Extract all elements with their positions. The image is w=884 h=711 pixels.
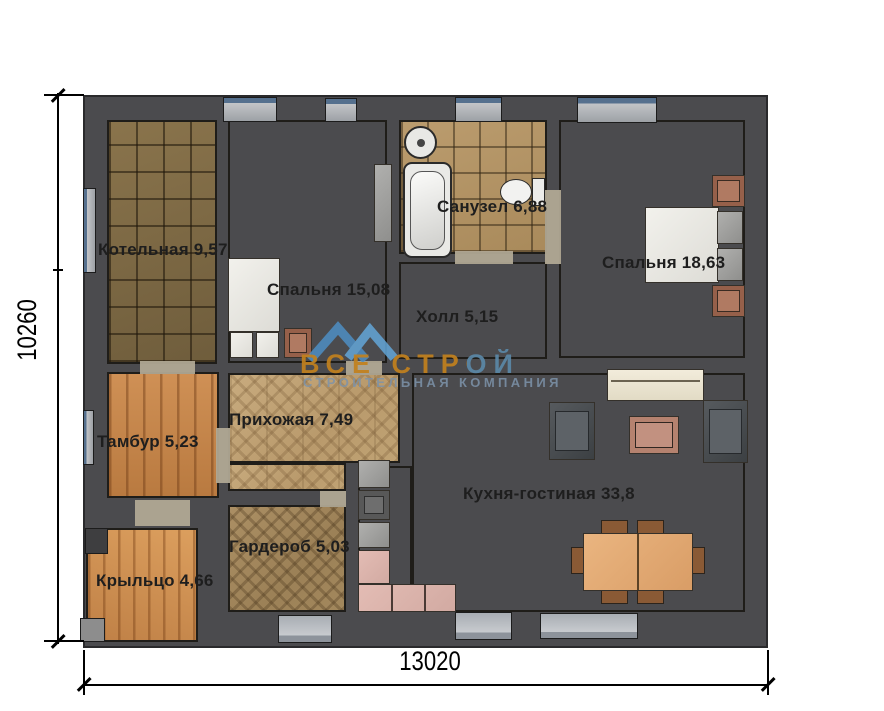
door-opening-porch bbox=[135, 500, 190, 526]
extension-line bbox=[44, 94, 84, 96]
dimension-line-vertical bbox=[57, 93, 59, 644]
room-label-hall: Холл 5,15 bbox=[416, 307, 498, 327]
extension-line bbox=[44, 640, 84, 642]
window bbox=[455, 97, 502, 122]
room-label-bedroom1: Спальня 15,08 bbox=[267, 280, 390, 300]
room-floor-wardrobe bbox=[228, 505, 346, 612]
sofa bbox=[607, 369, 704, 401]
watermark-subtitle: СТРОИТЕЛЬНАЯ КОМПАНИЯ bbox=[303, 375, 562, 390]
room-label-entry: Прихожая 7,49 bbox=[229, 410, 353, 430]
nightstand bbox=[712, 285, 745, 317]
window bbox=[540, 613, 638, 639]
nightstand bbox=[712, 175, 745, 207]
dimension-height-label: 10260 bbox=[12, 291, 42, 370]
window bbox=[83, 410, 94, 465]
dining-chair bbox=[691, 547, 705, 574]
dimension-line-horizontal bbox=[83, 684, 768, 686]
coffee-table bbox=[629, 416, 679, 454]
bed-pillow bbox=[717, 211, 743, 244]
door-opening-vestibule bbox=[216, 428, 230, 483]
kitchen-cabinet bbox=[358, 522, 390, 548]
extension-line bbox=[83, 650, 85, 695]
fridge bbox=[358, 460, 390, 488]
window bbox=[83, 188, 96, 273]
extension-line bbox=[53, 269, 63, 271]
bed-pillow bbox=[230, 332, 253, 358]
armchair bbox=[549, 402, 595, 460]
dining-chair bbox=[601, 589, 628, 604]
dining-chair bbox=[637, 589, 664, 604]
sink bbox=[404, 126, 437, 159]
room-label-bedroom2: Спальня 18,63 bbox=[602, 253, 725, 273]
room-label-boiler: Котельная 9,57 bbox=[98, 240, 228, 260]
closet bbox=[374, 164, 392, 242]
room-label-vestibule: Тамбур 5,23 bbox=[97, 432, 199, 452]
oven bbox=[358, 490, 390, 520]
window bbox=[455, 612, 512, 640]
dimension-width-label: 13020 bbox=[393, 646, 467, 677]
room-label-bathroom: Санузел 6,88 bbox=[437, 197, 547, 217]
kitchen-counter bbox=[358, 584, 456, 612]
door-opening-bedroom2 bbox=[545, 190, 561, 264]
window bbox=[325, 98, 357, 122]
room-floor-entry-corridor bbox=[228, 463, 346, 491]
door-opening-wardrobe bbox=[320, 491, 346, 507]
extension-line bbox=[767, 650, 769, 695]
door-opening-bathroom bbox=[455, 251, 513, 264]
room-label-wardrobe: Гардероб 5,03 bbox=[229, 537, 350, 557]
room-label-kitchen-living: Кухня-гостиная 33,8 bbox=[463, 484, 635, 504]
armchair bbox=[703, 400, 748, 463]
kitchen-counter bbox=[358, 550, 390, 584]
porch-post bbox=[85, 528, 108, 554]
bed-pillow bbox=[256, 332, 279, 358]
window bbox=[577, 97, 657, 123]
window bbox=[223, 97, 277, 122]
dining-table bbox=[583, 533, 693, 591]
door-opening-boiler bbox=[140, 361, 195, 374]
porch-post bbox=[80, 618, 105, 642]
window bbox=[278, 615, 332, 643]
floor-plan: Котельная 9,57 Спальня 15,08 Санузел 6,8… bbox=[0, 0, 884, 711]
room-label-porch: Крыльцо 4,66 bbox=[96, 571, 214, 591]
